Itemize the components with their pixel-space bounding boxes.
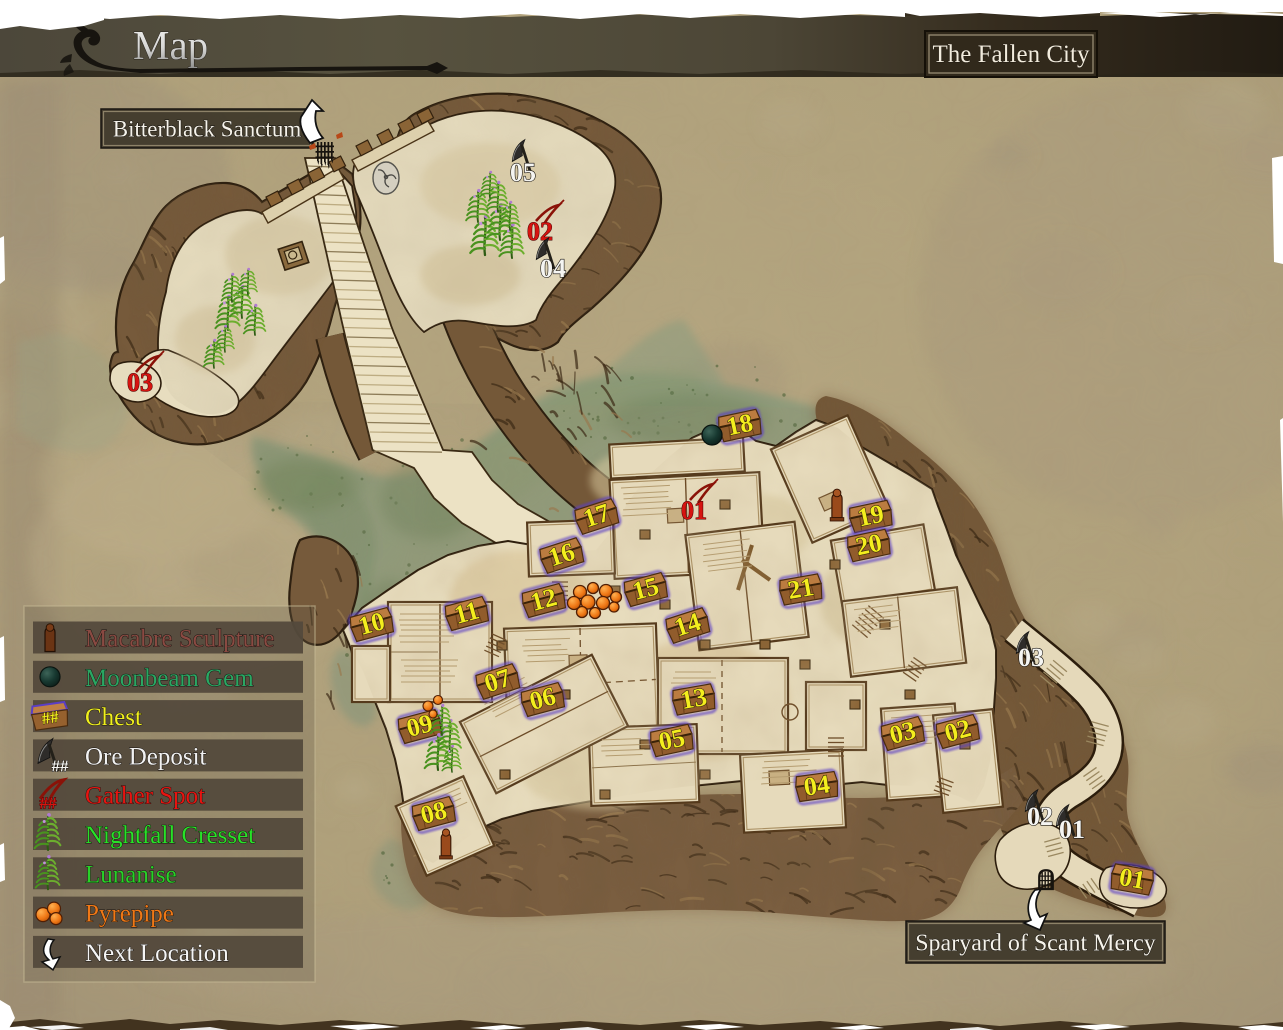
- svg-text:Map: Map: [133, 22, 208, 68]
- svg-text:Chest: Chest: [85, 704, 142, 731]
- svg-text:Sparyard of Scant Mercy: Sparyard of Scant Mercy: [915, 930, 1156, 956]
- svg-text:01: 01: [1059, 815, 1085, 844]
- svg-text:##: ##: [40, 794, 58, 813]
- svg-text:01: 01: [681, 496, 707, 525]
- svg-text:02: 02: [527, 217, 553, 246]
- svg-text:Nightfall Cresset: Nightfall Cresset: [85, 822, 255, 849]
- svg-text:##: ##: [40, 707, 60, 728]
- svg-text:05: 05: [510, 158, 536, 187]
- svg-text:02: 02: [1027, 802, 1053, 831]
- svg-text:Moonbeam Gem: Moonbeam Gem: [85, 665, 254, 692]
- svg-text:01: 01: [1117, 862, 1148, 895]
- svg-text:03: 03: [1018, 643, 1044, 672]
- svg-text:Macabre Sculpture: Macabre Sculpture: [85, 626, 275, 653]
- svg-text:Pyrepipe: Pyrepipe: [85, 901, 174, 928]
- svg-text:Ore Deposit: Ore Deposit: [85, 743, 207, 770]
- svg-text:Lunanise: Lunanise: [85, 861, 177, 888]
- svg-text:The Fallen City: The Fallen City: [933, 41, 1090, 68]
- svg-text:21: 21: [785, 572, 816, 605]
- svg-text:03: 03: [127, 368, 153, 397]
- svg-text:13: 13: [678, 682, 709, 715]
- svg-text:04: 04: [802, 769, 832, 801]
- svg-text:Bitterblack Sanctum: Bitterblack Sanctum: [113, 117, 302, 142]
- svg-text:Next Location: Next Location: [85, 940, 229, 967]
- svg-text:04: 04: [540, 254, 566, 283]
- svg-text:Gather Spot: Gather Spot: [85, 783, 205, 810]
- svg-text:##: ##: [52, 756, 70, 775]
